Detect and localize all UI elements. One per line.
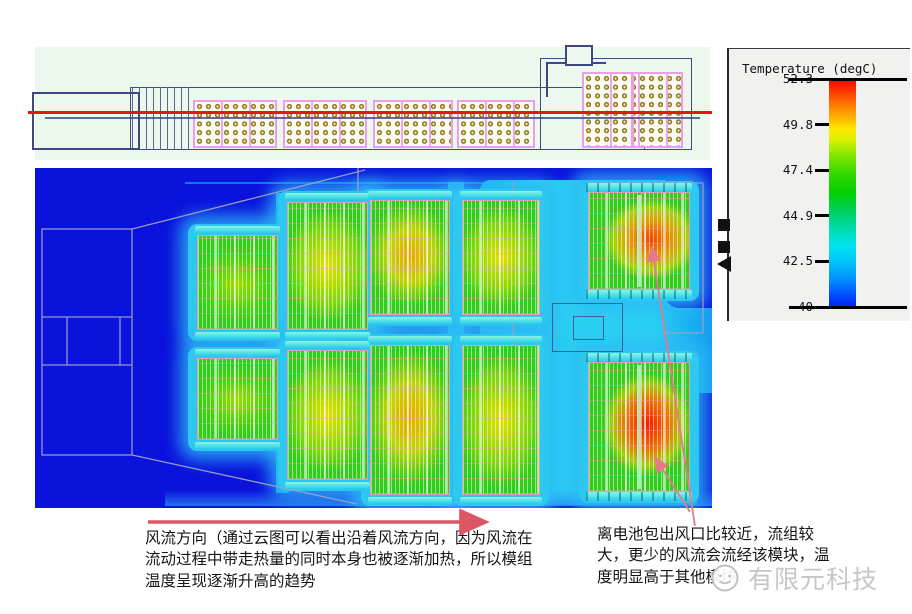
battery-module-top-3 xyxy=(370,200,450,315)
battery-module-top-2 xyxy=(287,202,368,330)
legend-tick-label: 44.9 xyxy=(737,208,813,223)
module-end-plate-top xyxy=(285,193,370,200)
battery-module-bottom-1 xyxy=(197,358,278,440)
watermark-text: 有限元科技 xyxy=(748,560,878,596)
legend-tick-label: 47.4 xyxy=(737,162,813,177)
legend-colorbar xyxy=(829,79,856,307)
cad-module-1 xyxy=(193,100,277,148)
module-end-plate-bottom xyxy=(285,482,370,489)
cad-module-4 xyxy=(457,100,535,148)
module-end-plate-bottom xyxy=(460,497,542,504)
module-center-divider xyxy=(637,365,641,489)
centerline xyxy=(45,117,700,119)
module-end-plate-bottom xyxy=(285,332,370,339)
flow-direction-note: 风流方向（通过云图可以看出沿着风流方向，因为风流在流动过程中带走热量的同时本身也… xyxy=(145,528,541,592)
watermark: 有限元科技 xyxy=(710,558,912,598)
battery-module-bottom-3 xyxy=(370,345,450,495)
duct-line-vertical xyxy=(546,62,548,97)
battery-module-top-4 xyxy=(462,200,540,315)
cad-module-5 xyxy=(582,72,683,148)
battery-module-bottom-4 xyxy=(462,345,540,495)
watermark-logo-icon xyxy=(710,563,740,593)
module-end-plate-bottom xyxy=(368,317,452,324)
module-center-divider xyxy=(637,195,641,287)
module-end-plate-top xyxy=(195,349,280,356)
module-end-plate-bottom xyxy=(368,497,452,504)
module-end-plate-bottom xyxy=(460,317,542,324)
cad-module-3 xyxy=(373,100,453,148)
module-end-plate-top xyxy=(460,336,542,343)
cad-module-2 xyxy=(283,100,367,148)
battery-module-bottom-2 xyxy=(287,350,368,480)
module-end-plate-top xyxy=(285,341,370,348)
legend-tick-mark xyxy=(789,306,907,310)
thermal-contour-plot xyxy=(35,168,712,508)
legend-tick-mark xyxy=(815,169,829,172)
inlet-box-wire xyxy=(42,229,132,455)
section-cut-line xyxy=(28,111,712,114)
legend-tick-mark xyxy=(789,78,907,82)
module-end-plate-top xyxy=(368,336,452,343)
module-end-plate-top xyxy=(586,183,692,192)
cad-side-view-panel xyxy=(30,42,712,162)
battery-module-top-1 xyxy=(197,235,278,330)
cfd-report-figure: Temperature (degC) 52.349.847.444.942.54… xyxy=(0,0,912,614)
module-end-plate-top xyxy=(368,191,452,198)
inlet-duct-outline xyxy=(32,92,140,150)
legend-tick-label: 49.8 xyxy=(737,117,813,132)
battery-module-top-right xyxy=(588,192,690,290)
component-box-inner xyxy=(573,316,604,340)
legend-tick-mark xyxy=(815,123,829,126)
module-end-plate-bottom xyxy=(586,492,692,501)
module-end-plate-top xyxy=(195,226,280,233)
battery-module-bottom-right xyxy=(588,362,690,492)
module-end-plate-bottom xyxy=(195,442,280,449)
module-end-plate-top xyxy=(460,191,542,198)
legend-tick-mark xyxy=(815,214,829,217)
legend-tick-label: 42.5 xyxy=(737,253,813,268)
vent-outline xyxy=(565,45,593,66)
temperature-legend: Temperature (degC) 52.349.847.444.942.54… xyxy=(727,48,910,321)
legend-tick-mark xyxy=(815,260,829,263)
module-end-plate-bottom xyxy=(195,332,280,339)
component-box xyxy=(552,303,623,352)
module-end-plate-bottom xyxy=(586,290,692,299)
module-end-plate-top xyxy=(586,353,692,362)
